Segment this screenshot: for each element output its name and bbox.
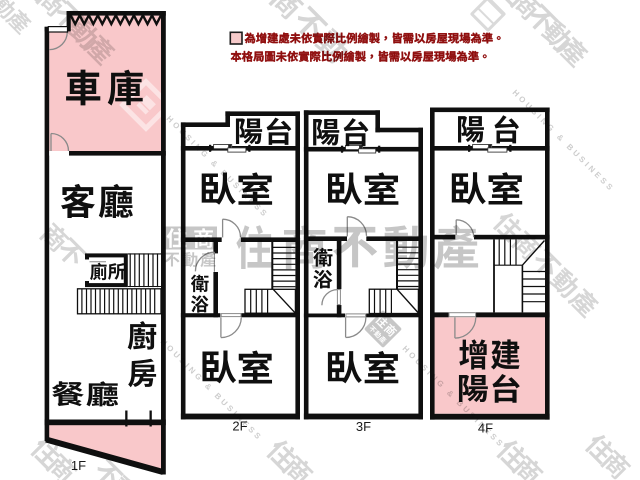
svg-text:3F: 3F [356,419,371,434]
